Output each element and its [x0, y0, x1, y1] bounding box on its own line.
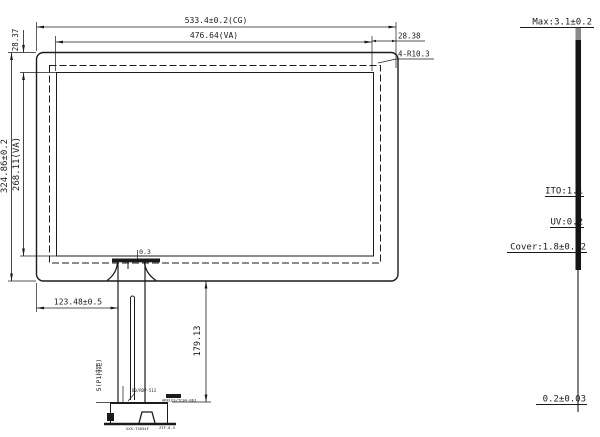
fpc-tail [107, 259, 160, 404]
pin-pitch-note: 5(P1排距) [94, 359, 103, 392]
dim-cg-width: 533.4±0.2(CG) [185, 16, 248, 25]
connector-label-3: XXX-T3034F [126, 426, 150, 431]
dim-va-width: 476.64(VA) [190, 31, 238, 40]
dim-top-border: 28.37 [11, 29, 20, 52]
stack-uv-label: UV:0.2 [550, 218, 583, 228]
stack-ito-label: ITO:1.1 [545, 187, 583, 197]
stack-section: Max:3.1±0.2 ITO:1.1 UV:0.2 Cover:1.8±0.0… [507, 18, 594, 413]
dim-tail-length: 179.13 [193, 326, 203, 357]
connector-latch [139, 412, 155, 423]
dim-cg-height: 324.86±0.2 [0, 139, 10, 193]
sensor-outline-dashed [50, 66, 381, 264]
tail-flare-right [145, 262, 157, 281]
view-area-outline [57, 73, 374, 257]
connector-label-2: ARKLES/TC04-06J [162, 398, 196, 403]
connector-label-4: ZIF-0.5 [159, 425, 175, 430]
dim-tail-offset: 123.48±0.5 [54, 298, 102, 307]
connector-key-block [107, 413, 114, 421]
tail-slot [131, 296, 135, 400]
stack-glass-bar [576, 40, 582, 270]
engineering-drawing: 533.4±0.2(CG) 476.64(VA) 28.38 4-R10.3 3… [0, 0, 600, 437]
tail-exit-bar [112, 259, 160, 263]
stack-cover-label: Cover:1.8±0.02 [510, 243, 586, 253]
corner-radius-note: 4-R10.3 [398, 50, 430, 59]
tail-flare-left [107, 262, 118, 281]
stack-top-segment [576, 27, 582, 40]
stack-fpc-label: 0.2±0.03 [543, 395, 586, 405]
stack-max-label: Max:3.1±0.2 [532, 18, 592, 28]
bottom-dimensions: 123.48±0.5 0.3 179.13 5(P1排距) [37, 248, 212, 403]
dim-tail-gap: 0.3 [139, 248, 151, 256]
dim-va-height: 268.11(VA) [12, 137, 22, 191]
top-dimensions: 533.4±0.2(CG) 476.64(VA) 28.38 4-R10.3 [37, 16, 435, 71]
drawing-canvas: 533.4±0.2(CG) 476.64(VA) 28.38 4-R10.3 3… [0, 0, 600, 437]
connector-label-1: B0/RDP-513 [132, 388, 157, 393]
cover-glass-outline [37, 53, 399, 282]
dim-right-border: 28.38 [398, 32, 421, 41]
panel-outlines [37, 53, 399, 282]
left-dimensions: 324.86±0.2 28.37 268.11(VA) [0, 29, 56, 281]
